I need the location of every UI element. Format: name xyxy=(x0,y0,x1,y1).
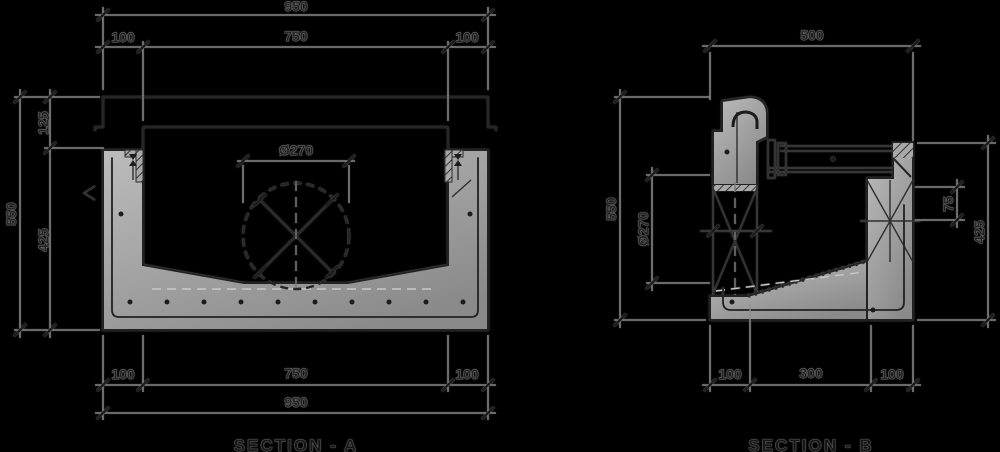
dim-bottom-wall-left-a: 100 xyxy=(111,366,135,382)
dim-height-overall-b: 550 xyxy=(603,197,619,221)
section-a-label: SECTION - A xyxy=(234,436,359,452)
dim-seat-depth-b: 75 xyxy=(940,196,956,212)
dim-pipe-diameter-b: Ø270 xyxy=(635,212,651,246)
dim-pipe-diameter-a: Ø270 xyxy=(279,142,313,158)
grate-seat-hatch xyxy=(893,143,913,158)
dim-top-overall-b: 500 xyxy=(800,27,824,43)
dim-top-wall-right-a: 100 xyxy=(455,29,479,45)
dim-bottom-internal-b: 300 xyxy=(799,365,823,381)
dim-height-overall-a: 550 xyxy=(3,202,19,226)
dim-body-height-a: 425 xyxy=(35,228,51,252)
dim-rebate-depth-a: 125 xyxy=(35,111,51,135)
dim-top-internal-a: 750 xyxy=(284,28,308,44)
rebar-dot xyxy=(871,308,876,313)
engineering-drawing-canvas: 950 100 750 100 550 125 425 Ø270 100 750… xyxy=(0,0,1000,452)
dim-top-overall-a: 950 xyxy=(284,0,308,14)
dim-outlet-height-b: 425 xyxy=(971,220,987,244)
dim-bottom-wall-left-b: 100 xyxy=(718,366,742,382)
dim-top-wall-left-a: 100 xyxy=(111,29,135,45)
dim-bottom-overall-a: 950 xyxy=(284,394,308,410)
rebar-dot xyxy=(725,150,730,155)
section-b-label: SECTION - B xyxy=(748,436,873,452)
dim-bottom-wall-right-b: 100 xyxy=(880,366,904,382)
dim-bottom-internal-a: 750 xyxy=(284,365,308,381)
drawing-background xyxy=(0,0,1000,452)
dim-bottom-wall-right-a: 100 xyxy=(455,366,479,382)
rebar-dot xyxy=(730,300,735,305)
technical-drawing: 950 100 750 100 550 125 425 Ø270 100 750… xyxy=(0,0,1000,452)
